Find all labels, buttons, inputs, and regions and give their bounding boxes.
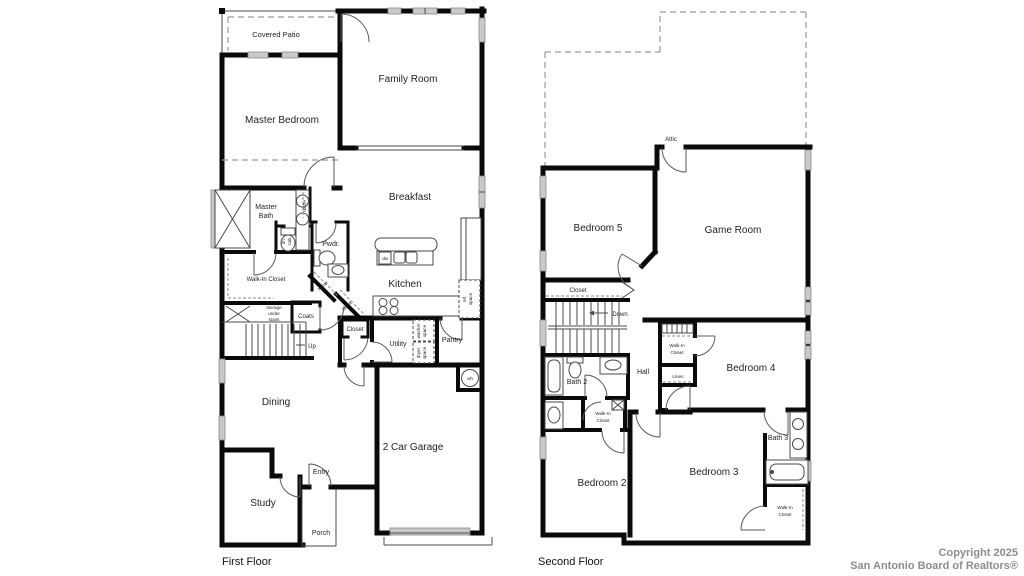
- label-closet-1f: Closet: [346, 327, 363, 333]
- label-storage-3: stairs: [269, 317, 281, 322]
- shower: [215, 190, 250, 248]
- label-walk-in-closet-1f: Walk-In Closet: [247, 277, 286, 283]
- label-pantry: Pantry: [442, 337, 463, 344]
- label-covered-patio: Covered Patio: [252, 30, 300, 39]
- bath3-fixtures: [766, 412, 808, 484]
- label-wic-b4-2: Closet: [670, 350, 684, 355]
- label-hall: Hall: [637, 369, 650, 376]
- floor-plan-page: Covered Patio Family Room Master Bedroom…: [0, 0, 1024, 576]
- label-bath2: Bath 2: [567, 379, 587, 386]
- label-wic-b3-2: Closet: [778, 512, 792, 517]
- label-bedroom4: Bedroom 4: [727, 363, 776, 374]
- label-up: Up: [308, 344, 316, 350]
- attic-access-box: [612, 400, 624, 410]
- label-storage-2: under: [268, 311, 280, 316]
- label-bedroom5: Bedroom 5: [574, 223, 623, 234]
- first-floor-labels: Covered Patio Family Room Master Bedroom…: [245, 30, 473, 537]
- watermark-line2: San Antonio Board of Realtors®: [850, 560, 1018, 572]
- label-master-bath-1: Master: [255, 204, 277, 211]
- label-wh: wh: [467, 376, 473, 381]
- label-wic-b2-1: Walk-In: [595, 411, 611, 416]
- second-floor-plan: Attic Bedroom 5 Game Room Closet Down Ba…: [540, 12, 811, 543]
- label-ref-2: space: [468, 292, 473, 305]
- label-study: Study: [250, 498, 276, 509]
- label-coats: Coats: [298, 314, 314, 320]
- powder-sink: [328, 264, 348, 277]
- label-master-bath-2: Bath: [259, 213, 274, 220]
- label-dryer-2: space: [422, 346, 427, 359]
- label-bedroom2: Bedroom 2: [578, 478, 627, 489]
- second-floor-caption: Second Floor: [538, 556, 604, 568]
- label-washer-2: space: [422, 324, 427, 337]
- label-pwdr: Pwdr.: [322, 241, 340, 248]
- first-floor-caption: First Floor: [222, 556, 272, 568]
- porch-outline: [302, 489, 336, 546]
- floor-plan-drawing: Covered Patio Family Room Master Bedroom…: [0, 0, 1024, 576]
- wic-b4-shelves: [662, 324, 693, 336]
- cooktop-counter: [373, 296, 460, 316]
- first-floor-plan: Covered Patio Family Room Master Bedroom…: [211, 8, 492, 546]
- label-master-bedroom: Master Bedroom: [245, 115, 319, 126]
- label-dw: dw: [382, 256, 389, 261]
- label-breakfast: Breakfast: [389, 192, 431, 203]
- label-niche-bath: Niche: [302, 200, 307, 212]
- label-bath3: Bath 3: [768, 435, 788, 442]
- label-down: Down: [612, 312, 627, 318]
- label-dryer-1: dryer: [416, 347, 421, 358]
- label-wic-b3-1: Walk-In: [777, 505, 793, 510]
- label-kitchen: Kitchen: [388, 279, 421, 290]
- label-dining: Dining: [262, 397, 290, 408]
- stairs-down: [548, 302, 627, 353]
- label-storage-1: storage: [266, 305, 282, 310]
- closet-b5-door-marks: [622, 282, 634, 298]
- label-entry: Entry: [313, 469, 330, 476]
- label-attic: Attic: [665, 137, 677, 143]
- first-floor-fixtures: [215, 190, 492, 546]
- watermark-line1: Copyright 2025: [939, 547, 1018, 559]
- label-garage: 2 Car Garage: [383, 442, 444, 453]
- label-wic-b2-2: Closet: [596, 418, 610, 423]
- label-game-room: Game Room: [705, 225, 762, 236]
- label-bedroom3: Bedroom 3: [690, 467, 739, 478]
- second-floor-doors: [583, 148, 788, 530]
- label-porch: Porch: [312, 530, 330, 537]
- label-ref-1: ref.: [462, 296, 467, 303]
- label-linen: Linen: [672, 374, 684, 379]
- label-lin-cab-1: lin.: [281, 238, 286, 244]
- label-wic-b4-1: Walk-In: [669, 343, 685, 348]
- label-closet-2f: Closet: [569, 288, 586, 294]
- label-lin-cab-2: cab.: [287, 237, 292, 246]
- label-washer-1: washer: [416, 323, 421, 338]
- label-family-room: Family Room: [379, 74, 438, 85]
- label-utility: Utility: [389, 341, 407, 348]
- bath2-fixtures: [545, 357, 627, 429]
